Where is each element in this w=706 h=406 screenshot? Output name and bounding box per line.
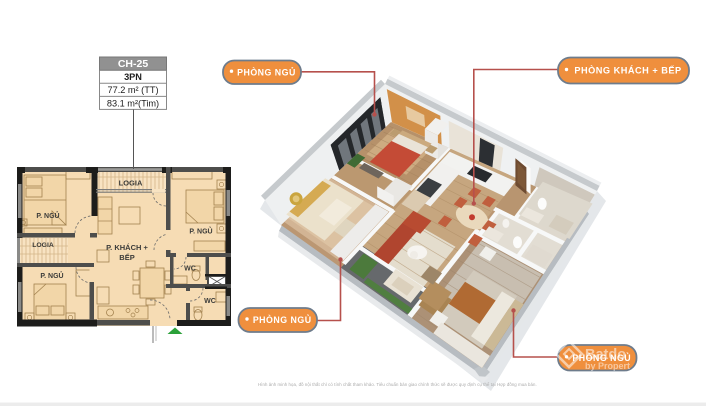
- svg-text:LOGIA: LOGIA: [119, 179, 143, 188]
- svg-text:77.2 m² (TT): 77.2 m² (TT): [107, 85, 158, 95]
- svg-text:BẾP: BẾP: [119, 252, 134, 262]
- svg-text:PHÒNG NGỦ: PHÒNG NGỦ: [253, 314, 312, 325]
- svg-text:WC: WC: [184, 266, 196, 273]
- svg-text:P. KHÁCH +: P. KHÁCH +: [106, 243, 148, 252]
- svg-text:by Propert: by Propert: [585, 361, 630, 371]
- svg-text:83.1 m²(Tim): 83.1 m²(Tim): [107, 98, 159, 108]
- svg-text:P. NGỦ: P. NGỦ: [36, 211, 59, 220]
- svg-text:Hình ảnh minh họa, đồ nội thất: Hình ảnh minh họa, đồ nội thất chỉ có tí…: [258, 382, 537, 387]
- svg-text:WC: WC: [204, 298, 216, 305]
- svg-text:CH-25: CH-25: [118, 58, 149, 70]
- svg-text:3PN: 3PN: [124, 72, 142, 82]
- svg-text:P. NGỦ: P. NGỦ: [40, 271, 63, 280]
- svg-text:P. NGỦ: P. NGỦ: [189, 227, 212, 236]
- svg-text:LOGIA: LOGIA: [32, 242, 54, 249]
- svg-text:PHÒNG KHÁCH + BẾP: PHÒNG KHÁCH + BẾP: [574, 65, 681, 76]
- svg-text:PHÒNG NGỦ: PHÒNG NGỦ: [237, 67, 296, 78]
